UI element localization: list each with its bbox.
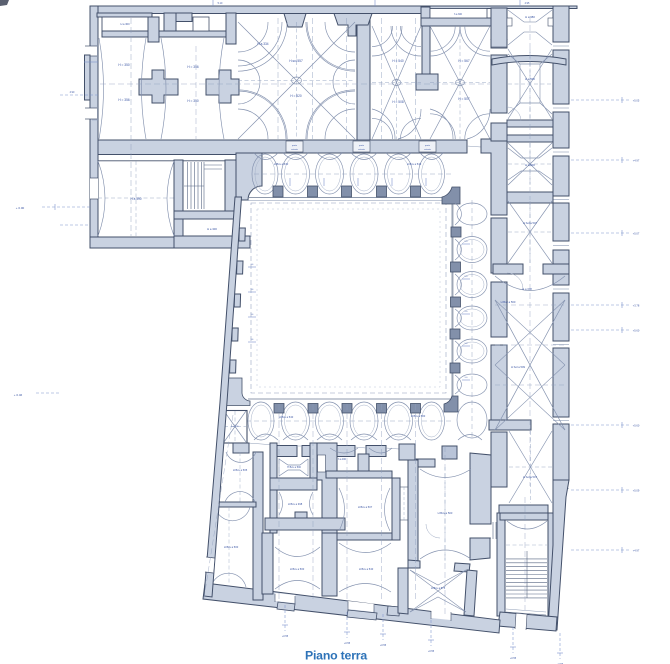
svg-text:+4.97: +4.97 bbox=[633, 159, 640, 163]
svg-text:+5.60: +5.60 bbox=[633, 424, 640, 428]
svg-text:H = 507: H = 507 bbox=[458, 97, 469, 101]
svg-text:H = 567: H = 567 bbox=[458, 59, 469, 63]
svg-text:3.6: 3.6 bbox=[251, 339, 254, 341]
svg-text:vetrata: vetrata bbox=[291, 148, 298, 151]
svg-text:H Bov a 540: H Bov a 540 bbox=[274, 162, 289, 166]
svg-text:H = 356: H = 356 bbox=[118, 98, 129, 102]
svg-text:4.90: 4.90 bbox=[70, 91, 75, 94]
svg-text:+ 0.46: + 0.46 bbox=[14, 393, 23, 397]
svg-text:H a 500: H a 500 bbox=[525, 77, 535, 81]
svg-text:H a 378: H a 378 bbox=[522, 287, 532, 291]
svg-text:h a 501: h a 501 bbox=[231, 426, 239, 428]
svg-text:H Bov a 560: H Bov a 560 bbox=[501, 300, 516, 304]
svg-text:H Bov a 500: H Bov a 500 bbox=[411, 414, 426, 418]
svg-text:H = 350: H = 350 bbox=[187, 99, 198, 103]
svg-text:H Bov a 540: H Bov a 540 bbox=[359, 567, 374, 571]
svg-text:5.0: 5.0 bbox=[465, 311, 469, 313]
svg-text:+5.60: +5.60 bbox=[633, 329, 640, 333]
svg-text:H Bov a 507: H Bov a 507 bbox=[358, 505, 373, 509]
svg-text:H a 300: H a 300 bbox=[207, 227, 217, 231]
svg-text:H a 500: H a 500 bbox=[525, 163, 535, 167]
svg-text:+0.55: +0.55 bbox=[510, 657, 517, 660]
svg-text:+5.05: +5.05 bbox=[633, 99, 640, 103]
svg-text:H Bov a 503: H Bov a 503 bbox=[438, 511, 453, 515]
svg-text:H Bov a 540: H Bov a 540 bbox=[279, 415, 294, 419]
svg-text:+0.55: +0.55 bbox=[428, 650, 435, 653]
svg-text:+5.09: +5.09 bbox=[633, 489, 640, 493]
svg-text:H Sol a 507: H Sol a 507 bbox=[523, 221, 538, 225]
svg-text:vetrata: vetrata bbox=[358, 148, 365, 151]
svg-text:H = 508: H = 508 bbox=[392, 100, 403, 104]
svg-text:h a 300: h a 300 bbox=[454, 13, 463, 16]
svg-text:Piano terra: Piano terra bbox=[305, 649, 367, 663]
svg-text:H = 350: H = 350 bbox=[118, 63, 129, 67]
svg-text:H a 300: H a 300 bbox=[120, 22, 130, 26]
svg-text:+0.55: +0.55 bbox=[380, 644, 387, 647]
svg-text:vetrata: vetrata bbox=[424, 148, 431, 151]
svg-text:H Bov a 505: H Bov a 505 bbox=[233, 468, 248, 472]
svg-text:+ 0.00: + 0.00 bbox=[16, 206, 25, 210]
svg-text:+3.78: +3.78 bbox=[633, 304, 640, 308]
svg-text:3.6: 3.6 bbox=[251, 314, 254, 316]
svg-text:H Bov a 500: H Bov a 500 bbox=[287, 466, 301, 469]
svg-text:4.95: 4.95 bbox=[525, 2, 530, 5]
svg-text:5.0: 5.0 bbox=[465, 377, 469, 379]
svg-text:H Bov a 500: H Bov a 500 bbox=[290, 567, 305, 571]
svg-text:3.6: 3.6 bbox=[251, 264, 254, 266]
svg-text:H Sol a 507: H Sol a 507 bbox=[523, 475, 538, 479]
svg-text:5.10: 5.10 bbox=[218, 2, 223, 5]
svg-text:H = 520: H = 520 bbox=[290, 94, 301, 98]
svg-text:+0.55: +0.55 bbox=[344, 642, 351, 645]
svg-text:5.0: 5.0 bbox=[465, 343, 469, 345]
svg-text:H Bov a 575: H Bov a 575 bbox=[431, 586, 446, 590]
svg-text:H.sol 557: H.sol 557 bbox=[289, 59, 303, 63]
svg-text:H a 590: H a 590 bbox=[130, 197, 141, 201]
svg-text:porta: porta bbox=[425, 144, 431, 147]
svg-text:H a 334: H a 334 bbox=[257, 42, 268, 46]
svg-text:H Bov a 500: H Bov a 500 bbox=[224, 545, 239, 549]
svg-text:porta: porta bbox=[359, 144, 365, 147]
svg-text:H = 540: H = 540 bbox=[392, 59, 403, 63]
svg-text:+5.07: +5.07 bbox=[633, 232, 640, 236]
svg-text:5.0: 5.0 bbox=[465, 241, 469, 243]
svg-text:+0.55: +0.55 bbox=[282, 635, 289, 638]
svg-text:porta: porta bbox=[292, 144, 298, 147]
svg-text:H = 356: H = 356 bbox=[187, 65, 198, 69]
svg-text:3.6: 3.6 bbox=[251, 289, 254, 291]
svg-text:5.0: 5.0 bbox=[465, 276, 469, 278]
svg-text:H Bov a 540: H Bov a 540 bbox=[407, 162, 422, 166]
svg-text:h a 460: h a 460 bbox=[338, 458, 347, 461]
svg-text:H a 380: H a 380 bbox=[525, 15, 535, 19]
svg-text:H Sol a 509: H Sol a 509 bbox=[511, 365, 526, 369]
svg-text:H Bov a 398: H Bov a 398 bbox=[288, 502, 303, 506]
svg-text:+4.97: +4.97 bbox=[633, 549, 640, 553]
